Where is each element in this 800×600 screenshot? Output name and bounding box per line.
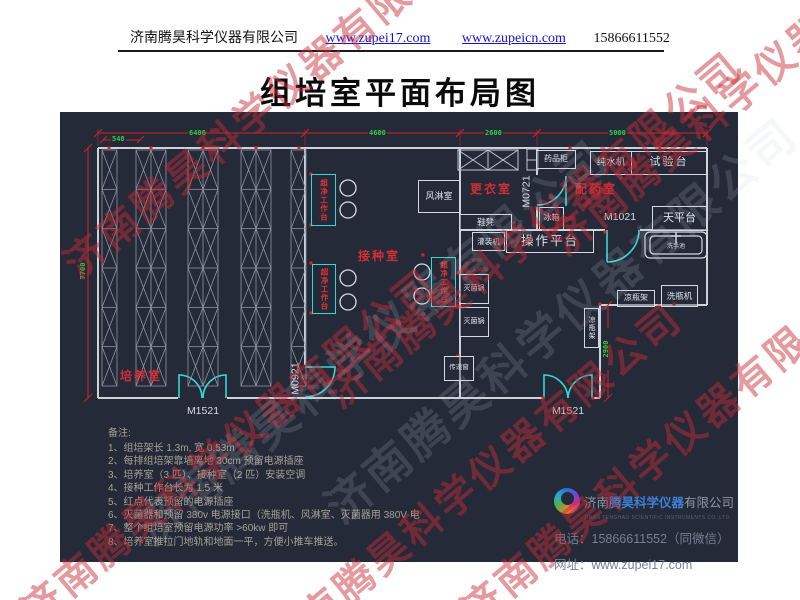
page-title: 组培室平面布局图 [0, 68, 800, 113]
header-link-zupei17[interactable]: www.zupei17.com [326, 31, 431, 46]
footer-company-name-en: JINAN TENGHAO SCIENTIFIC INSTRUMENTS CO.… [584, 515, 738, 521]
page: 济南腾昊科学仪器有限公司 www.zupei17.com www.zupeicn… [0, 0, 800, 600]
cad-drawing-panel: 548 6400 4600 2600 5000 7700 2900 培养室 接种… [60, 112, 738, 562]
door-label-m1521-left: M1521 [181, 406, 225, 417]
medicine-cabinet: 药品柜 [536, 150, 576, 169]
stool-group [340, 180, 430, 310]
dim-7700: 7700 [79, 250, 87, 292]
footer-company-name: 济南腾昊科学仪器有限公司 [584, 492, 734, 511]
note-item: 4、接种工作台长为 1.5 米 [108, 482, 420, 495]
transfer-window: 传递窗 [444, 356, 474, 381]
dim-2900: 2900 [602, 328, 610, 370]
balance-table: 天平台 [652, 206, 707, 231]
culture-rack-group [102, 150, 306, 386]
notes-list: 1、组培架长 1.3m, 宽 0.53m 2、每排组培架靠墙离地 30cm 预留… [108, 442, 420, 549]
room-label-dispensing: 配药室 [575, 183, 617, 196]
footer-company-block: 济南腾昊科学仪器有限公司 JINAN TENGHAO SCIENTIFIC IN… [554, 488, 738, 573]
door-label-m1021: M1021 [600, 212, 640, 223]
dim-2600: 2600 [484, 129, 503, 137]
note-item: 8、培养室推拉门地轨和地面一平，方便小推车推送。 [108, 536, 420, 549]
header-link-zupeicn[interactable]: www.zupeicn.com [462, 31, 566, 46]
shoe-bench: 鞋凳 [459, 214, 512, 230]
fridge: 冰箱 [539, 207, 564, 230]
sterilizer-1: 灭菌锅 [459, 274, 489, 304]
sterilizer-2: 灭菌锅 [459, 307, 489, 337]
dim-6400: 6400 [188, 129, 207, 137]
clean-bench-1: 超净工作台 [311, 174, 336, 226]
clean-bench-3: 超净工作台 [431, 257, 456, 307]
note-item: 3、培养室（3 匹）、接种室（2 匹）安装空调 [108, 469, 420, 482]
bottle-washer: 洗瓶机 [661, 285, 698, 307]
company-logo [554, 488, 580, 514]
notes-block: 备注: 1、组培架长 1.3m, 宽 0.53m 2、每排组培架靠墙离地 30c… [108, 424, 420, 549]
note-item: 2、每排组培架靠墙离地 30cm 预留电源插座 [108, 455, 420, 468]
test-bench: 试验台 [631, 151, 707, 175]
bottle-cooling-rack: 凉瓶架 [617, 290, 655, 307]
note-item: 5、红点代表预留的电源插座 [108, 496, 420, 509]
dim-4600: 4600 [368, 129, 387, 137]
door-label-m0921: M0921 [290, 359, 301, 399]
room-label-culture: 培养室 [120, 370, 162, 383]
dim-5000: 5000 [608, 129, 627, 137]
sink-label: 洗手池 [652, 243, 700, 252]
room-label-inoculation: 接种室 [358, 250, 400, 263]
door-label-m0721: M0721 [521, 172, 532, 212]
bottle-cooling-rack-vertical: 凉瓶架 [584, 308, 599, 348]
dim-548: 548 [111, 135, 126, 143]
clean-bench-2: 超净工作台 [312, 264, 336, 314]
footer-phone: 电话：15866611552（同微信） [554, 528, 738, 547]
door-label-m1521-right: M1521 [546, 406, 590, 417]
note-item: 7、整个组培室预留电源功率 >60kw 即可 [108, 522, 420, 535]
page-header: 济南腾昊科学仪器有限公司 www.zupei17.com www.zupeicn… [0, 27, 800, 47]
header-company-name: 济南腾昊科学仪器有限公司 [130, 31, 298, 46]
note-item: 6、灭菌器和预留 380v 电源接口（洗瓶机、风淋室、灭菌器用 380V 电 [108, 509, 420, 522]
operation-platform: 操作平台 [506, 230, 594, 253]
notes-title: 备注: [108, 424, 420, 439]
pure-water-machine: 纯水机 [590, 151, 632, 175]
filling-machine: 灌装机 [472, 232, 505, 251]
locker-x-icon [458, 150, 518, 170]
header-divider [118, 50, 664, 52]
footer-website: 网址：www.zupei17.com [554, 554, 738, 573]
room-label-changing: 更衣室 [470, 183, 512, 196]
note-item: 1、组培架长 1.3m, 宽 0.53m [108, 442, 420, 455]
air-shower-room: 风淋室 [418, 180, 460, 213]
header-phone: 15866611552 [593, 31, 669, 46]
